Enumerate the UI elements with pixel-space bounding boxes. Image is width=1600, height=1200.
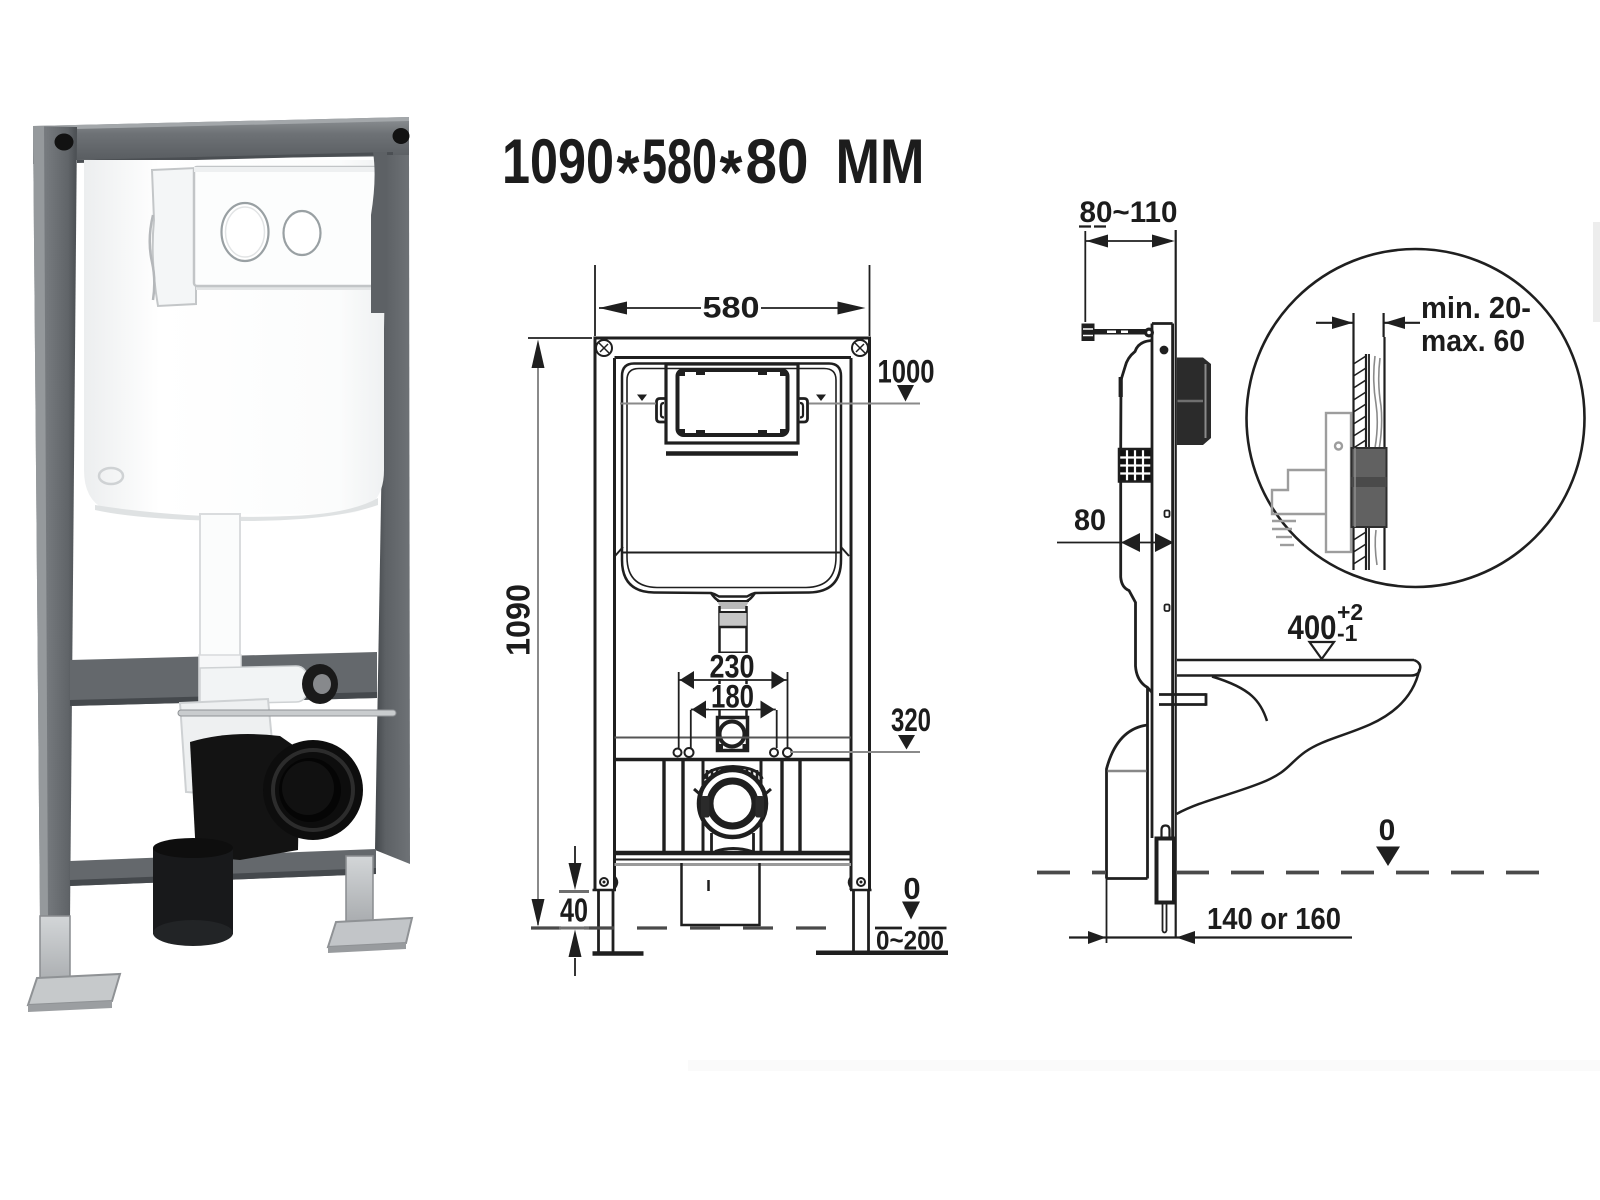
- svg-text:-1: -1: [1337, 620, 1358, 646]
- svg-text:80: 80: [1074, 504, 1106, 537]
- svg-text:1000: 1000: [878, 354, 935, 390]
- svg-text:320: 320: [891, 702, 931, 738]
- svg-text:140 or 160: 140 or 160: [1207, 901, 1341, 936]
- svg-text:*: *: [720, 138, 743, 208]
- svg-text:180: 180: [711, 679, 754, 715]
- svg-text:580: 580: [703, 292, 760, 325]
- svg-text:580: 580: [642, 127, 717, 197]
- svg-text:0: 0: [1379, 814, 1396, 847]
- svg-text:0: 0: [903, 871, 920, 906]
- svg-text:max. 60: max. 60: [1421, 323, 1525, 358]
- svg-text:80: 80: [746, 127, 809, 197]
- svg-text:40: 40: [560, 892, 588, 929]
- svg-text:1090: 1090: [500, 584, 537, 656]
- svg-text:0~200: 0~200: [876, 926, 944, 956]
- svg-text:MM: MM: [836, 127, 925, 197]
- svg-text:min. 20-: min. 20-: [1421, 290, 1531, 325]
- svg-text:1090: 1090: [502, 127, 614, 197]
- svg-text:80~110: 80~110: [1080, 196, 1178, 229]
- svg-text:*: *: [617, 138, 640, 208]
